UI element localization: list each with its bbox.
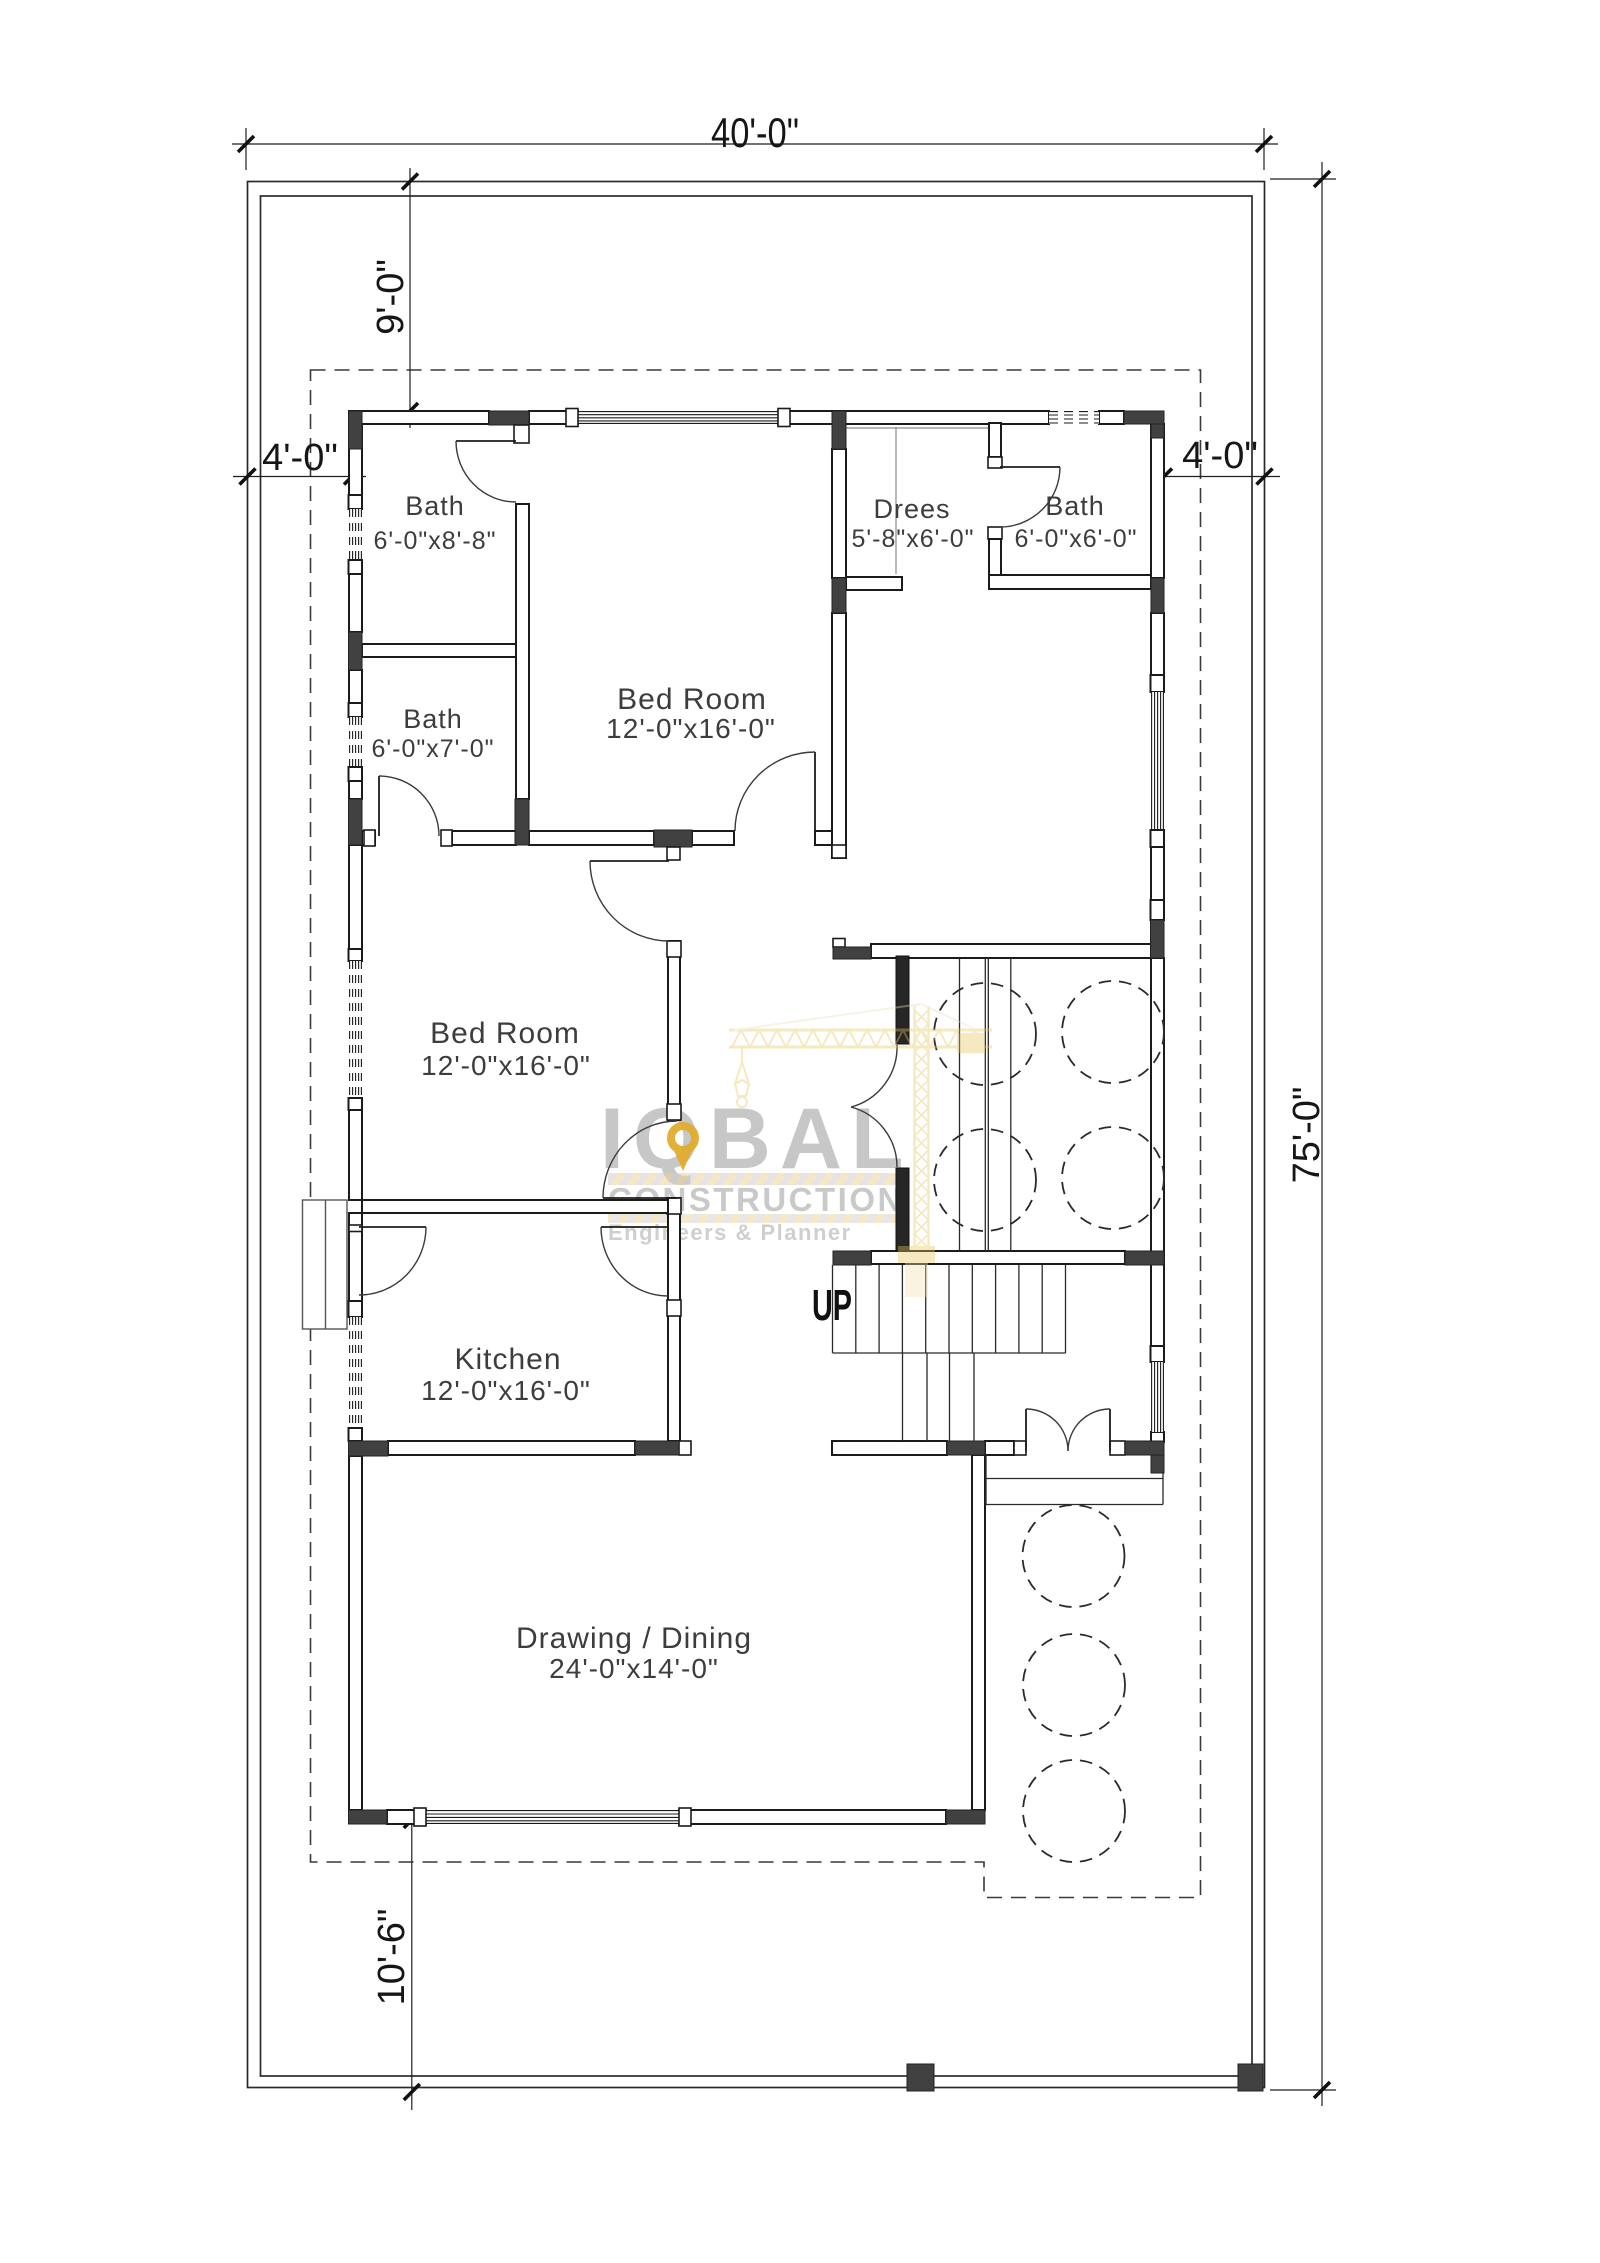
svg-text:Kitchen: Kitchen xyxy=(454,1343,561,1376)
svg-text:6'-0"x6'-0": 6'-0"x6'-0" xyxy=(1014,525,1137,553)
svg-text:75'-0": 75'-0" xyxy=(1286,1087,1328,1184)
svg-text:4'-0": 4'-0" xyxy=(1182,435,1258,477)
svg-text:10'-6": 10'-6" xyxy=(371,1909,413,2006)
svg-text:24'-0"x14'-0": 24'-0"x14'-0" xyxy=(549,1653,719,1684)
svg-text:Engineers & Planner: Engineers & Planner xyxy=(608,1220,852,1245)
svg-text:UP: UP xyxy=(812,1281,852,1330)
svg-text:IQBAL: IQBAL xyxy=(600,1091,913,1187)
svg-text:Drawing / Dining: Drawing / Dining xyxy=(516,1622,752,1655)
svg-text:12'-0"x16'-0": 12'-0"x16'-0" xyxy=(421,1050,591,1081)
svg-text:Bath: Bath xyxy=(1045,491,1105,521)
svg-text:Bath: Bath xyxy=(405,491,465,521)
svg-text:9'-0": 9'-0" xyxy=(370,259,412,335)
svg-text:12'-0"x16'-0": 12'-0"x16'-0" xyxy=(606,713,776,744)
svg-text:12'-0"x16'-0": 12'-0"x16'-0" xyxy=(421,1375,591,1406)
svg-text:Bath: Bath xyxy=(403,704,463,734)
svg-text:6'-0"x8'-8": 6'-0"x8'-8" xyxy=(373,527,496,555)
svg-text:Drees: Drees xyxy=(873,494,950,524)
svg-text:4'-0": 4'-0" xyxy=(262,437,338,479)
svg-text:Bed Room: Bed Room xyxy=(430,1017,580,1050)
svg-text:6'-0"x7'-0": 6'-0"x7'-0" xyxy=(371,735,494,763)
svg-text:5'-8"x6'-0": 5'-8"x6'-0" xyxy=(851,525,974,553)
svg-text:40'-0": 40'-0" xyxy=(711,109,799,156)
svg-text:Bed Room: Bed Room xyxy=(617,683,767,716)
